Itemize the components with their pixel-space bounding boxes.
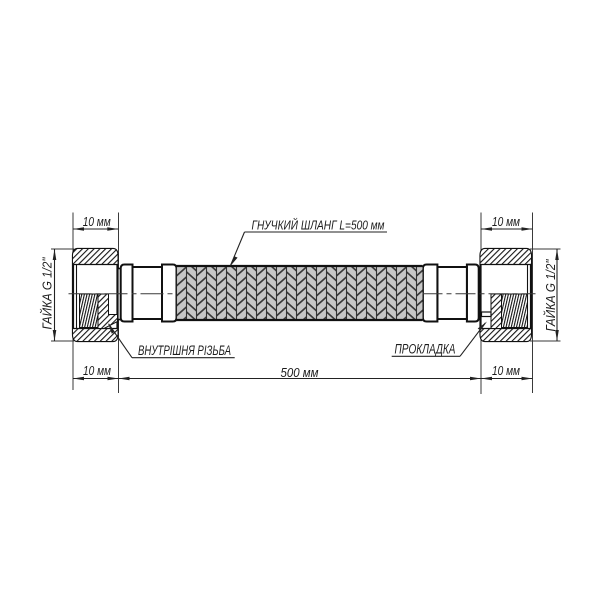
svg-text:ВНУТРІШНЯ РІЗЬБА: ВНУТРІШНЯ РІЗЬБА [138,342,231,358]
svg-text:ГАЙКА G 1/2": ГАЙКА G 1/2" [39,256,55,329]
svg-text:ПРОКЛАДКА: ПРОКЛАДКА [395,341,456,357]
svg-text:10 мм: 10 мм [492,364,520,378]
svg-text:10 мм: 10 мм [83,364,111,378]
svg-text:ГНУЧКИЙ ШЛАНГ L=500 мм: ГНУЧКИЙ ШЛАНГ L=500 мм [252,217,385,233]
svg-text:ГАЙКА G 1/2": ГАЙКА G 1/2" [542,258,558,331]
svg-text:10 мм: 10 мм [83,215,111,229]
svg-text:10 мм: 10 мм [492,215,520,229]
svg-text:500 мм: 500 мм [281,365,319,380]
